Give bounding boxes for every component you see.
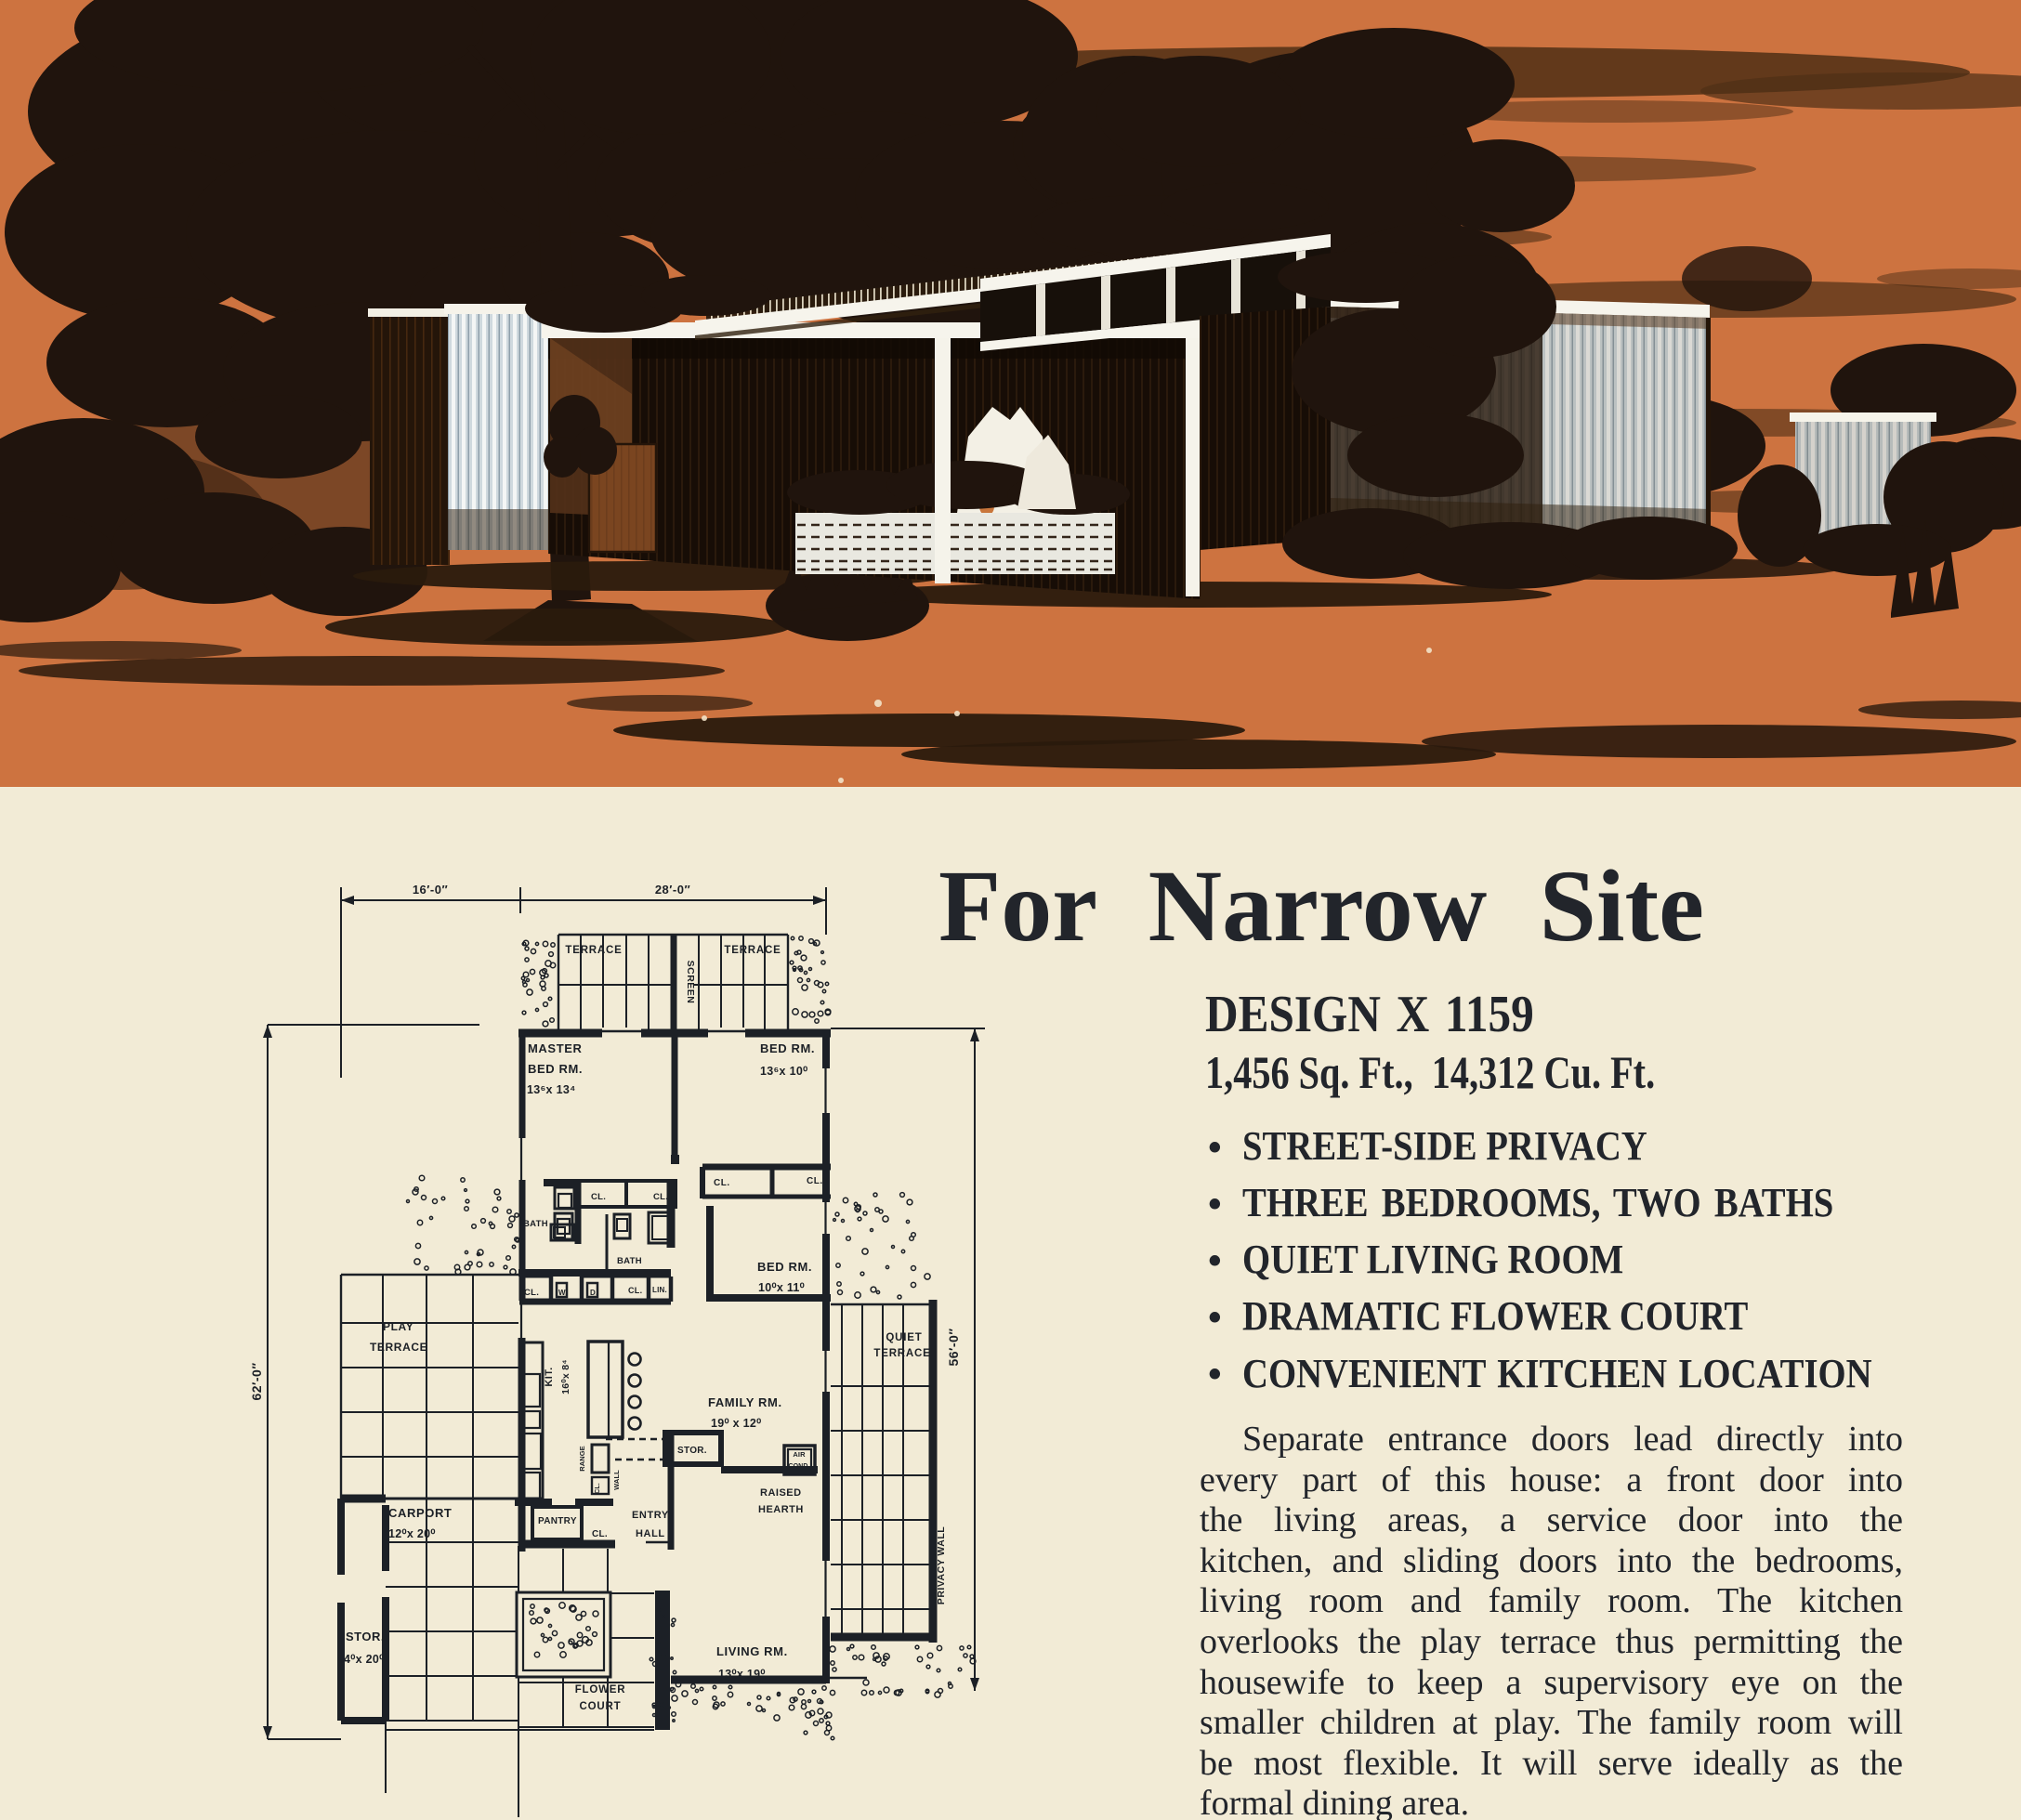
svg-text:CL.: CL. <box>653 1192 668 1202</box>
svg-text:56′-0″: 56′-0″ <box>946 1328 961 1366</box>
svg-text:CL.: CL. <box>524 1288 539 1298</box>
svg-text:STOR.: STOR. <box>346 1630 385 1643</box>
svg-text:STOR.: STOR. <box>677 1446 707 1456</box>
svg-text:ENTRY: ENTRY <box>632 1510 669 1521</box>
svg-text:FLOWER: FLOWER <box>575 1684 626 1696</box>
svg-text:CARPORT: CARPORT <box>388 1506 452 1520</box>
svg-text:BED RM.: BED RM. <box>760 1041 815 1055</box>
svg-text:QUIET: QUIET <box>886 1332 922 1343</box>
svg-text:4⁰x 20⁰: 4⁰x 20⁰ <box>344 1653 385 1666</box>
svg-text:13⁶x 13⁴: 13⁶x 13⁴ <box>527 1083 576 1096</box>
svg-text:62′-0″: 62′-0″ <box>249 1362 264 1400</box>
svg-text:CL.: CL. <box>807 1176 823 1186</box>
svg-text:28′-0″: 28′-0″ <box>655 883 690 897</box>
svg-text:W.: W. <box>558 1289 568 1297</box>
svg-text:CL.: CL. <box>628 1286 642 1295</box>
svg-text:LIVING RM.: LIVING RM. <box>716 1644 788 1658</box>
svg-text:AIR: AIR <box>793 1450 806 1459</box>
svg-text:COURT: COURT <box>580 1701 622 1712</box>
svg-text:19⁰ x 12⁰: 19⁰ x 12⁰ <box>711 1417 762 1430</box>
svg-text:KIT.: KIT. <box>544 1367 555 1386</box>
svg-text:COND.: COND. <box>788 1463 809 1470</box>
svg-text:SCREEN: SCREEN <box>685 961 696 1004</box>
svg-text:LIN.: LIN. <box>652 1286 667 1294</box>
svg-text:16⁰x 8⁴: 16⁰x 8⁴ <box>560 1359 571 1394</box>
svg-text:TERRACE: TERRACE <box>873 1348 930 1359</box>
svg-text:BATH: BATH <box>523 1219 548 1229</box>
svg-text:16′-0″: 16′-0″ <box>413 883 448 897</box>
svg-text:TERRACE: TERRACE <box>565 945 622 956</box>
svg-text:10⁰x 11⁰: 10⁰x 11⁰ <box>758 1281 806 1294</box>
svg-text:PLAY: PLAY <box>383 1320 413 1333</box>
svg-text:TERRACE: TERRACE <box>370 1341 427 1354</box>
svg-text:CL.: CL. <box>714 1178 730 1188</box>
svg-text:D.: D. <box>590 1289 597 1297</box>
svg-text:12⁰x 20⁰: 12⁰x 20⁰ <box>388 1527 436 1540</box>
svg-text:RANGE: RANGE <box>578 1446 586 1472</box>
svg-text:CL.: CL. <box>592 1529 608 1539</box>
svg-text:HALL: HALL <box>636 1528 665 1539</box>
svg-text:CL.: CL. <box>591 1192 606 1202</box>
svg-text:TERRACE: TERRACE <box>724 945 781 956</box>
svg-text:BATH: BATH <box>617 1256 642 1266</box>
svg-text:BED RM.: BED RM. <box>757 1260 812 1274</box>
svg-text:PANTRY: PANTRY <box>538 1516 577 1526</box>
svg-text:RAISED: RAISED <box>760 1487 802 1499</box>
svg-text:FAMILY RM.: FAMILY RM. <box>708 1395 782 1409</box>
svg-text:PRIVACY WALL: PRIVACY WALL <box>936 1526 947 1604</box>
svg-text:CL.: CL. <box>595 1483 601 1494</box>
svg-text:HEARTH: HEARTH <box>758 1504 804 1515</box>
svg-text:13⁶x 10⁰: 13⁶x 10⁰ <box>760 1065 808 1078</box>
svg-text:BED RM.: BED RM. <box>528 1062 583 1076</box>
svg-text:MASTER: MASTER <box>528 1041 583 1055</box>
svg-text:WALL: WALL <box>612 1470 621 1490</box>
